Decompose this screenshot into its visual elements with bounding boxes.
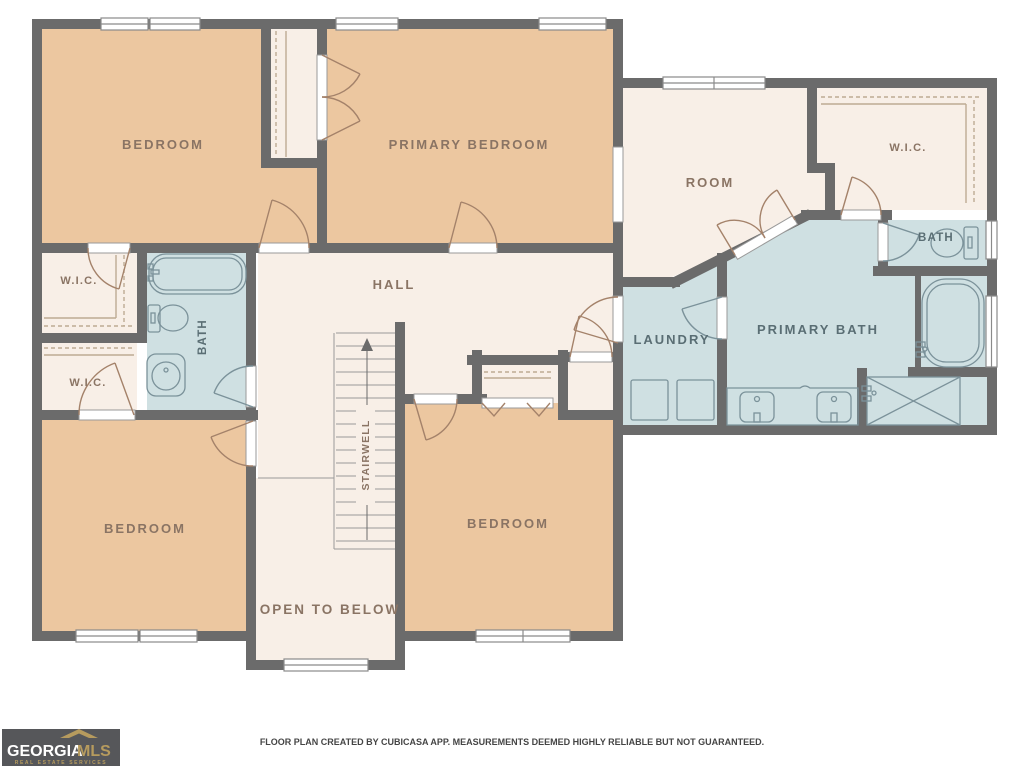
threshold-laundry-primary-bath-door [717, 297, 727, 339]
closet-bedroom4-fill [477, 360, 560, 403]
room-bedroom-bottom-right-fill [405, 399, 613, 631]
georgia-mls-logo: GEORGIA MLS REAL ESTATE SERVICES [2, 729, 120, 766]
label-wic-left-lower: W.I.C. [69, 377, 106, 389]
threshold-linen-closet-door [570, 352, 612, 362]
threshold-wic-lower-left-door [79, 410, 135, 420]
closet-linen-fill [565, 357, 613, 415]
label-wic-top-right: W.I.C. [889, 142, 926, 154]
threshold-bath-right-door [878, 223, 888, 261]
logo-brand-secondary: MLS [77, 743, 111, 760]
window [986, 221, 997, 259]
threshold-bedroom3-door [246, 421, 256, 466]
floor-plan-page: BEDROOM PRIMARY BEDROOM ROOM W.I.C. W.I.… [0, 0, 1024, 768]
label-bath-left: BATH [197, 319, 209, 355]
label-open-to-below: OPEN TO BELOW [260, 602, 401, 617]
threshold-bath-left-door [246, 366, 256, 407]
window [76, 630, 138, 642]
threshold-primary-bedroom-room-opening [613, 147, 623, 222]
label-laundry: LAUNDRY [633, 332, 710, 347]
window [336, 18, 398, 30]
room-wic-upper-left-fill [42, 253, 137, 333]
room-hall-corridor-fill [258, 248, 334, 480]
window [539, 18, 606, 30]
floor-plan-canvas: BEDROOM PRIMARY BEDROOM ROOM W.I.C. W.I.… [0, 0, 1024, 768]
threshold-bedroom4-door [414, 394, 457, 404]
label-bedroom-bottom-right: BEDROOM [467, 516, 549, 531]
logo-brand-primary: GEORGIA [7, 743, 83, 760]
window [663, 77, 765, 89]
window [476, 630, 570, 642]
label-wic-left-upper: W.I.C. [60, 275, 97, 287]
threshold-wic-right-door [841, 210, 881, 220]
window [986, 296, 997, 367]
label-bath-right: BATH [918, 232, 954, 244]
threshold-primary-bedroom-door [449, 243, 497, 253]
room-hall-nook-fill [405, 340, 472, 396]
label-stairwell: STAIRWELL [360, 419, 372, 490]
closet-top-middle-fill [271, 29, 317, 158]
label-room: ROOM [686, 175, 734, 190]
threshold-laundry-hall-door [613, 296, 623, 342]
window [150, 18, 200, 30]
label-primary-bedroom: PRIMARY BEDROOM [389, 137, 550, 152]
room-primary-bedroom-fill [327, 29, 613, 243]
label-bedroom-top-left: BEDROOM [122, 137, 204, 152]
threshold-wic-upper-left-door [88, 243, 130, 253]
room-hall-stair-top-fill [334, 253, 400, 333]
label-primary-bath: PRIMARY BATH [757, 322, 879, 337]
threshold-closet-bedroom4-bifold [482, 398, 553, 408]
window [284, 659, 368, 671]
window [140, 630, 197, 642]
logo-tagline: REAL ESTATE SERVICES [15, 760, 107, 766]
disclaimer-text: FLOOR PLAN CREATED BY CUBICASA APP. MEAS… [260, 737, 764, 747]
room-open-to-below-fill [255, 478, 400, 660]
threshold-bedroom1-door [259, 243, 309, 253]
window [101, 18, 148, 30]
label-bedroom-bottom-left: BEDROOM [104, 521, 186, 536]
label-hall: HALL [373, 277, 416, 292]
